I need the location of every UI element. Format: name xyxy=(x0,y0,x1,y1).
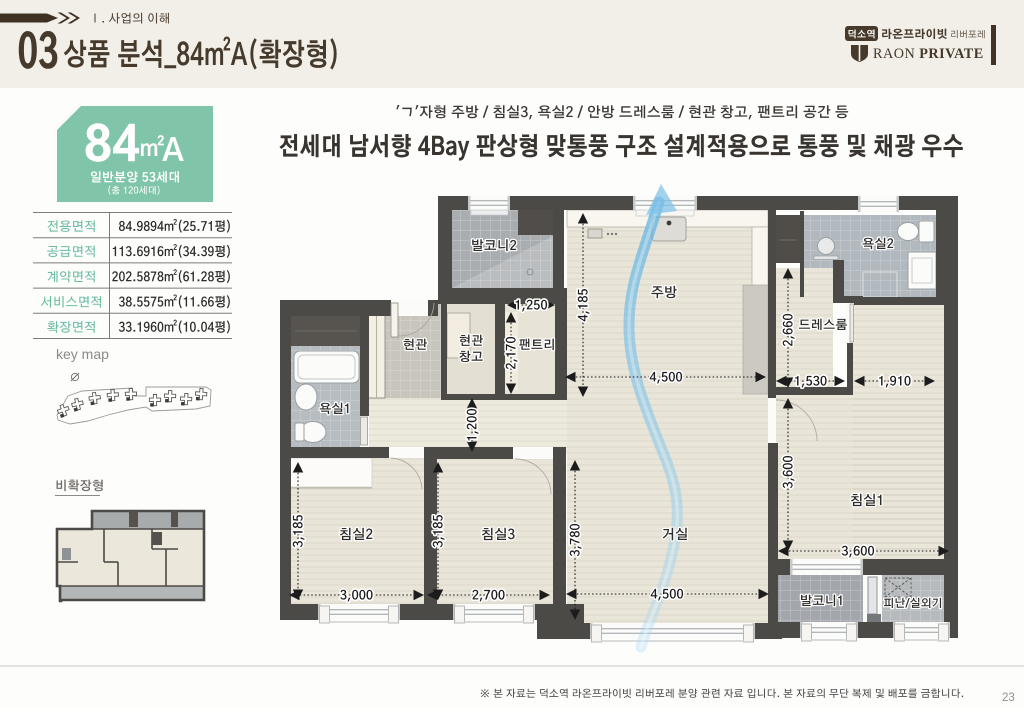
svg-text:RAON PRIVATE: RAON PRIVATE xyxy=(873,46,984,62)
svg-text:23: 23 xyxy=(1002,692,1015,704)
svg-text:key map: key map xyxy=(56,346,109,362)
